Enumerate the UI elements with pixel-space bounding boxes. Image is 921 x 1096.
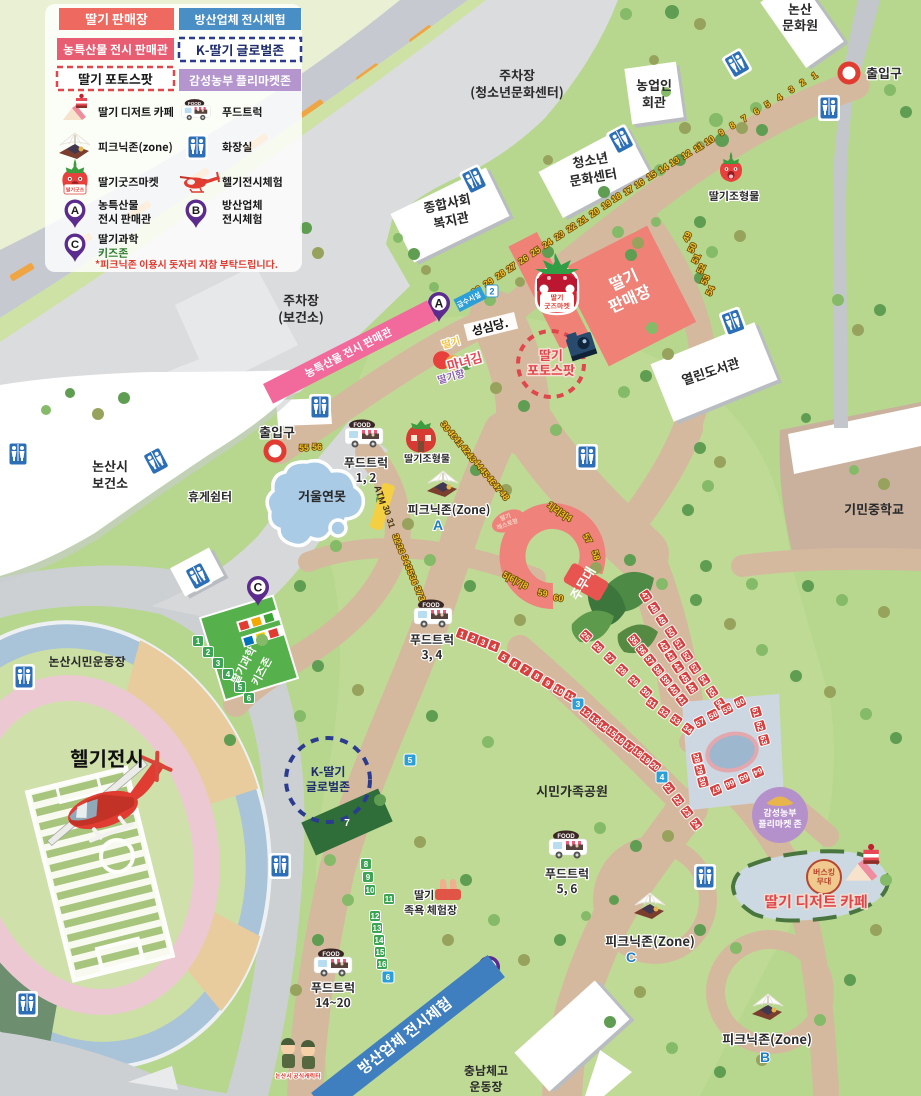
svg-text:12: 12	[371, 912, 380, 921]
svg-text:C: C	[71, 239, 79, 251]
svg-text:C: C	[254, 581, 263, 595]
svg-text:59: 59	[537, 587, 549, 599]
svg-text:60: 60	[553, 592, 564, 603]
svg-text:13: 13	[373, 924, 382, 933]
svg-text:8: 8	[364, 860, 369, 869]
svg-text:11: 11	[385, 895, 394, 904]
svg-text:15: 15	[376, 948, 385, 957]
svg-text:10: 10	[366, 886, 375, 895]
svg-text:9: 9	[366, 873, 371, 882]
svg-text:4: 4	[226, 670, 231, 679]
svg-text:56: 56	[312, 442, 322, 452]
svg-text:5: 5	[408, 755, 413, 765]
svg-text:2: 2	[489, 287, 494, 297]
svg-text:3: 3	[216, 659, 221, 668]
svg-text:1: 1	[196, 637, 201, 646]
svg-text:A: A	[433, 517, 443, 533]
svg-text:5: 5	[238, 683, 243, 692]
svg-text:A: A	[435, 297, 444, 311]
svg-text:55: 55	[299, 443, 309, 453]
svg-text:6: 6	[386, 972, 391, 982]
svg-text:4: 4	[660, 772, 665, 782]
svg-text:6: 6	[247, 694, 252, 703]
svg-text:A: A	[71, 205, 79, 217]
svg-text:3: 3	[576, 699, 581, 709]
svg-text:7: 7	[344, 818, 350, 829]
svg-text:C: C	[626, 949, 636, 965]
svg-text:14: 14	[375, 936, 384, 945]
svg-text:B: B	[192, 205, 200, 217]
svg-text:2: 2	[206, 648, 211, 657]
svg-text:B: B	[760, 1049, 770, 1065]
svg-text:16: 16	[378, 960, 387, 969]
